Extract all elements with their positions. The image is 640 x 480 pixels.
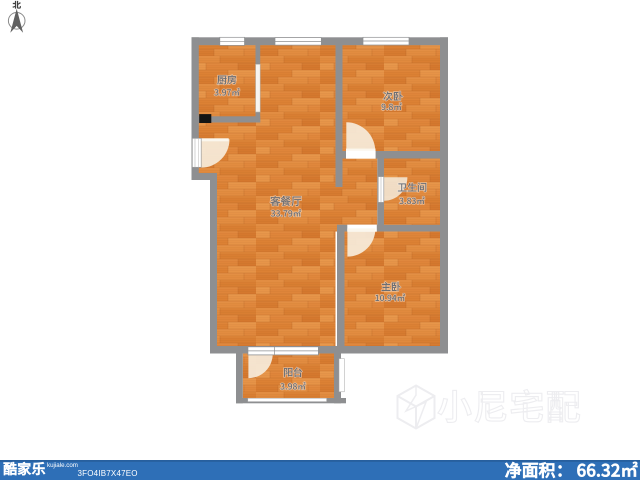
svg-text:3.83㎡: 3.83㎡ <box>399 195 425 207</box>
svg-text:酷家乐: 酷家乐 <box>3 459 47 479</box>
svg-text:10.94㎡: 10.94㎡ <box>375 292 406 304</box>
svg-text:3.97㎡: 3.97㎡ <box>214 86 240 98</box>
svg-text:kujiale.com: kujiale.com <box>47 462 78 469</box>
svg-text:33.79㎡: 33.79㎡ <box>271 207 302 219</box>
svg-text:小尼宅配: 小尼宅配 <box>437 380 582 431</box>
svg-text:北: 北 <box>11 0 21 11</box>
svg-text:阳台: 阳台 <box>283 364 303 379</box>
svg-text:卫生间: 卫生间 <box>397 180 427 194</box>
svg-text:3.98㎡: 3.98㎡ <box>280 380 306 392</box>
svg-text:净面积： 66.32㎡: 净面积： 66.32㎡ <box>505 457 638 480</box>
svg-text:厨房: 厨房 <box>217 71 237 86</box>
svg-text:9.8㎡: 9.8㎡ <box>381 101 402 113</box>
svg-text:3FO4IB7X47EO: 3FO4IB7X47EO <box>78 469 138 478</box>
